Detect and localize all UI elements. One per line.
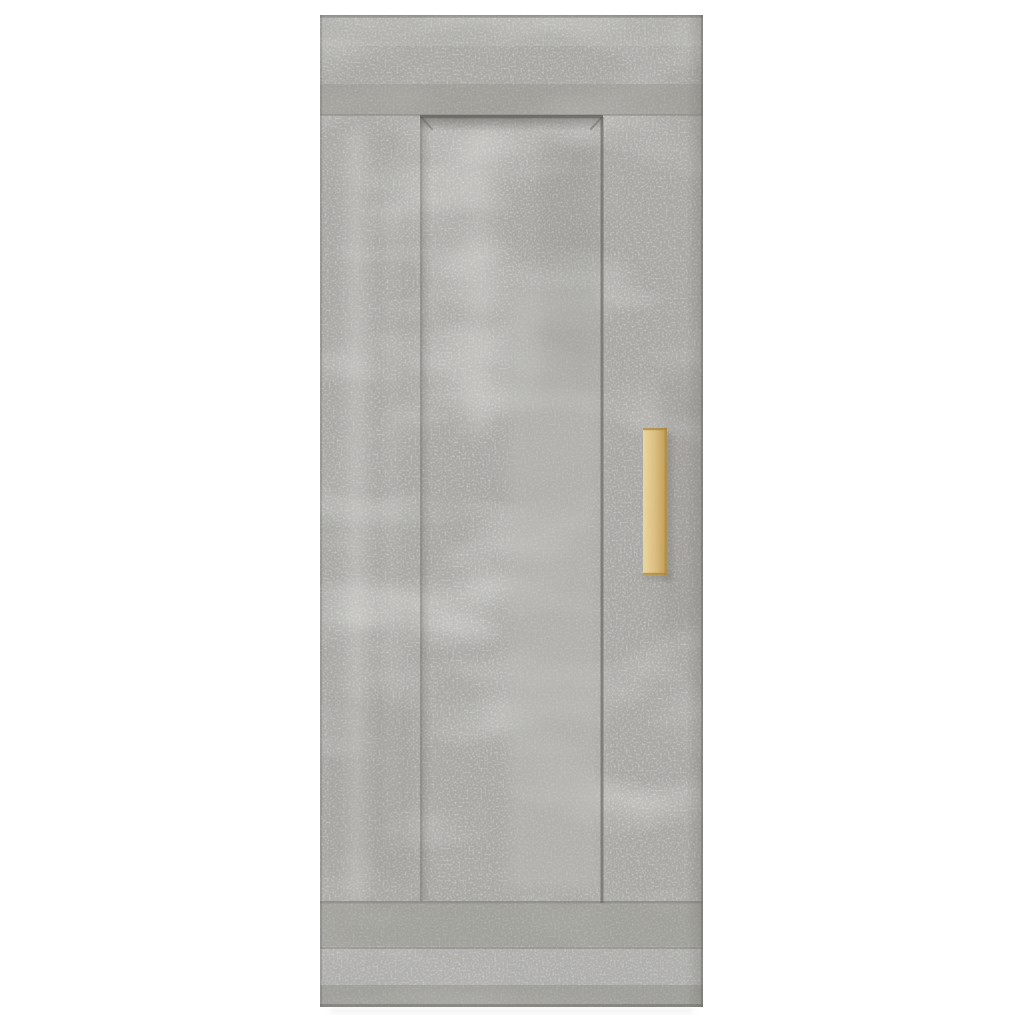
cabinet-handle bbox=[643, 428, 672, 581]
panel-streak bbox=[450, 135, 505, 435]
top-edge-highlight bbox=[320, 16, 703, 46]
door-recess-top-line bbox=[420, 115, 603, 118]
top-edge-line bbox=[320, 15, 703, 18]
panel-dark-patch bbox=[540, 140, 598, 390]
bottom-strip-dark bbox=[320, 985, 703, 1007]
bottom-light-band bbox=[320, 949, 703, 985]
right-edge-shade bbox=[686, 15, 703, 1007]
cabinet-illustration bbox=[0, 0, 1024, 1024]
door-recess-right-line bbox=[601, 117, 604, 903]
door-recess-left-shadow bbox=[422, 118, 431, 900]
right-edge-line bbox=[701, 15, 703, 1007]
bottom-dark-band bbox=[320, 904, 703, 947]
door-bottom-seam bbox=[320, 901, 703, 903]
top-dark-band bbox=[320, 84, 703, 115]
bottom-edge-line bbox=[320, 1004, 703, 1007]
bottom-band-seam bbox=[320, 947, 703, 949]
cabinet bbox=[320, 15, 703, 1007]
lower-left-dark-patch bbox=[330, 700, 410, 880]
handle-grain bbox=[643, 428, 667, 575]
left-edge-line bbox=[320, 15, 322, 1007]
handle-right-shade bbox=[665, 428, 668, 575]
product-photo bbox=[0, 0, 1024, 1024]
handle-top-edge bbox=[643, 428, 667, 430]
handle-bottom-edge bbox=[643, 573, 667, 575]
floor-shadow bbox=[330, 1008, 693, 1013]
door-recess-left-line bbox=[420, 117, 422, 901]
door-recess-top-shadow bbox=[420, 118, 603, 131]
